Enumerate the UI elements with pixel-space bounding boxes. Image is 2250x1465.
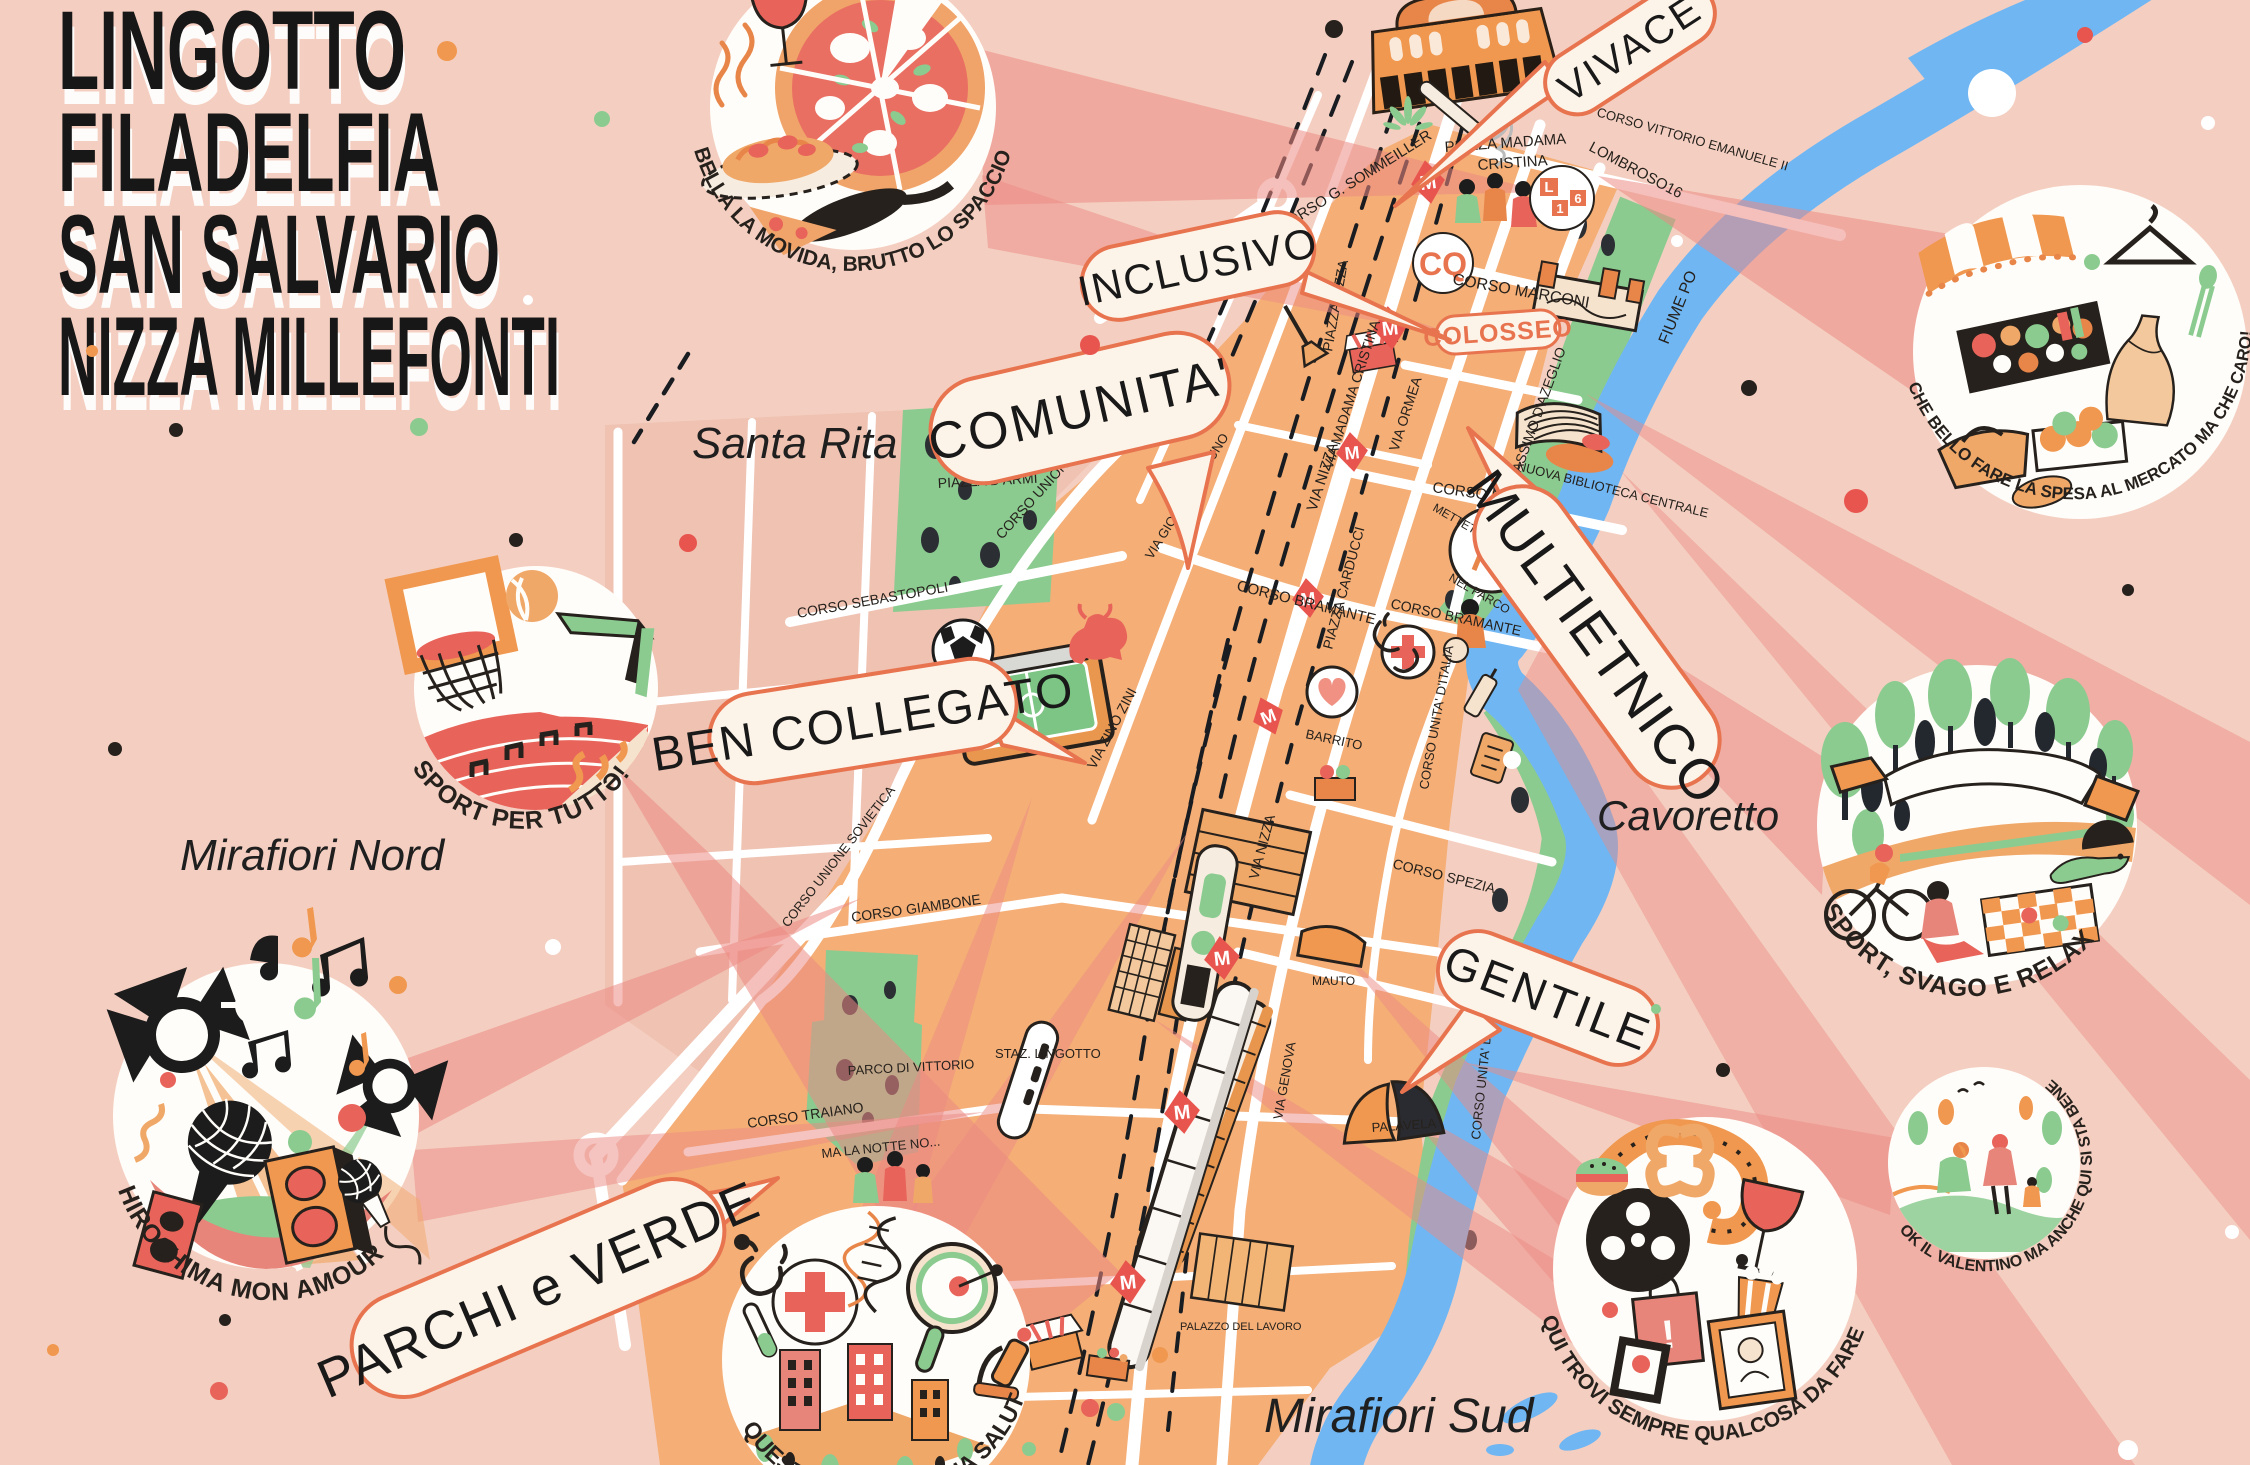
svg-text:M: M [1344, 442, 1361, 463]
svg-text:M: M [1213, 947, 1232, 971]
svg-text:L: L [1544, 179, 1553, 196]
svg-text:6: 6 [1574, 191, 1581, 206]
svg-text:Cavoretto: Cavoretto [1597, 792, 1779, 839]
svg-text:M: M [1119, 1271, 1138, 1295]
svg-text:Mirafiori Sud: Mirafiori Sud [1264, 1390, 1535, 1443]
svg-text:Santa Rita: Santa Rita [692, 419, 897, 468]
svg-text:1: 1 [1556, 201, 1563, 216]
svg-text:MAUTO: MAUTO [1312, 974, 1355, 988]
svg-text:Mirafiori Nord: Mirafiori Nord [180, 831, 446, 880]
svg-text:NIZZA MILLEFONTI: NIZZA MILLEFONTI [58, 294, 560, 419]
svg-text:STAZ. LINGOTTO: STAZ. LINGOTTO [995, 1046, 1101, 1061]
svg-text:M: M [1173, 1101, 1192, 1125]
svg-text:PALAZZO DEL LAVORO: PALAZZO DEL LAVORO [1180, 1321, 1302, 1333]
